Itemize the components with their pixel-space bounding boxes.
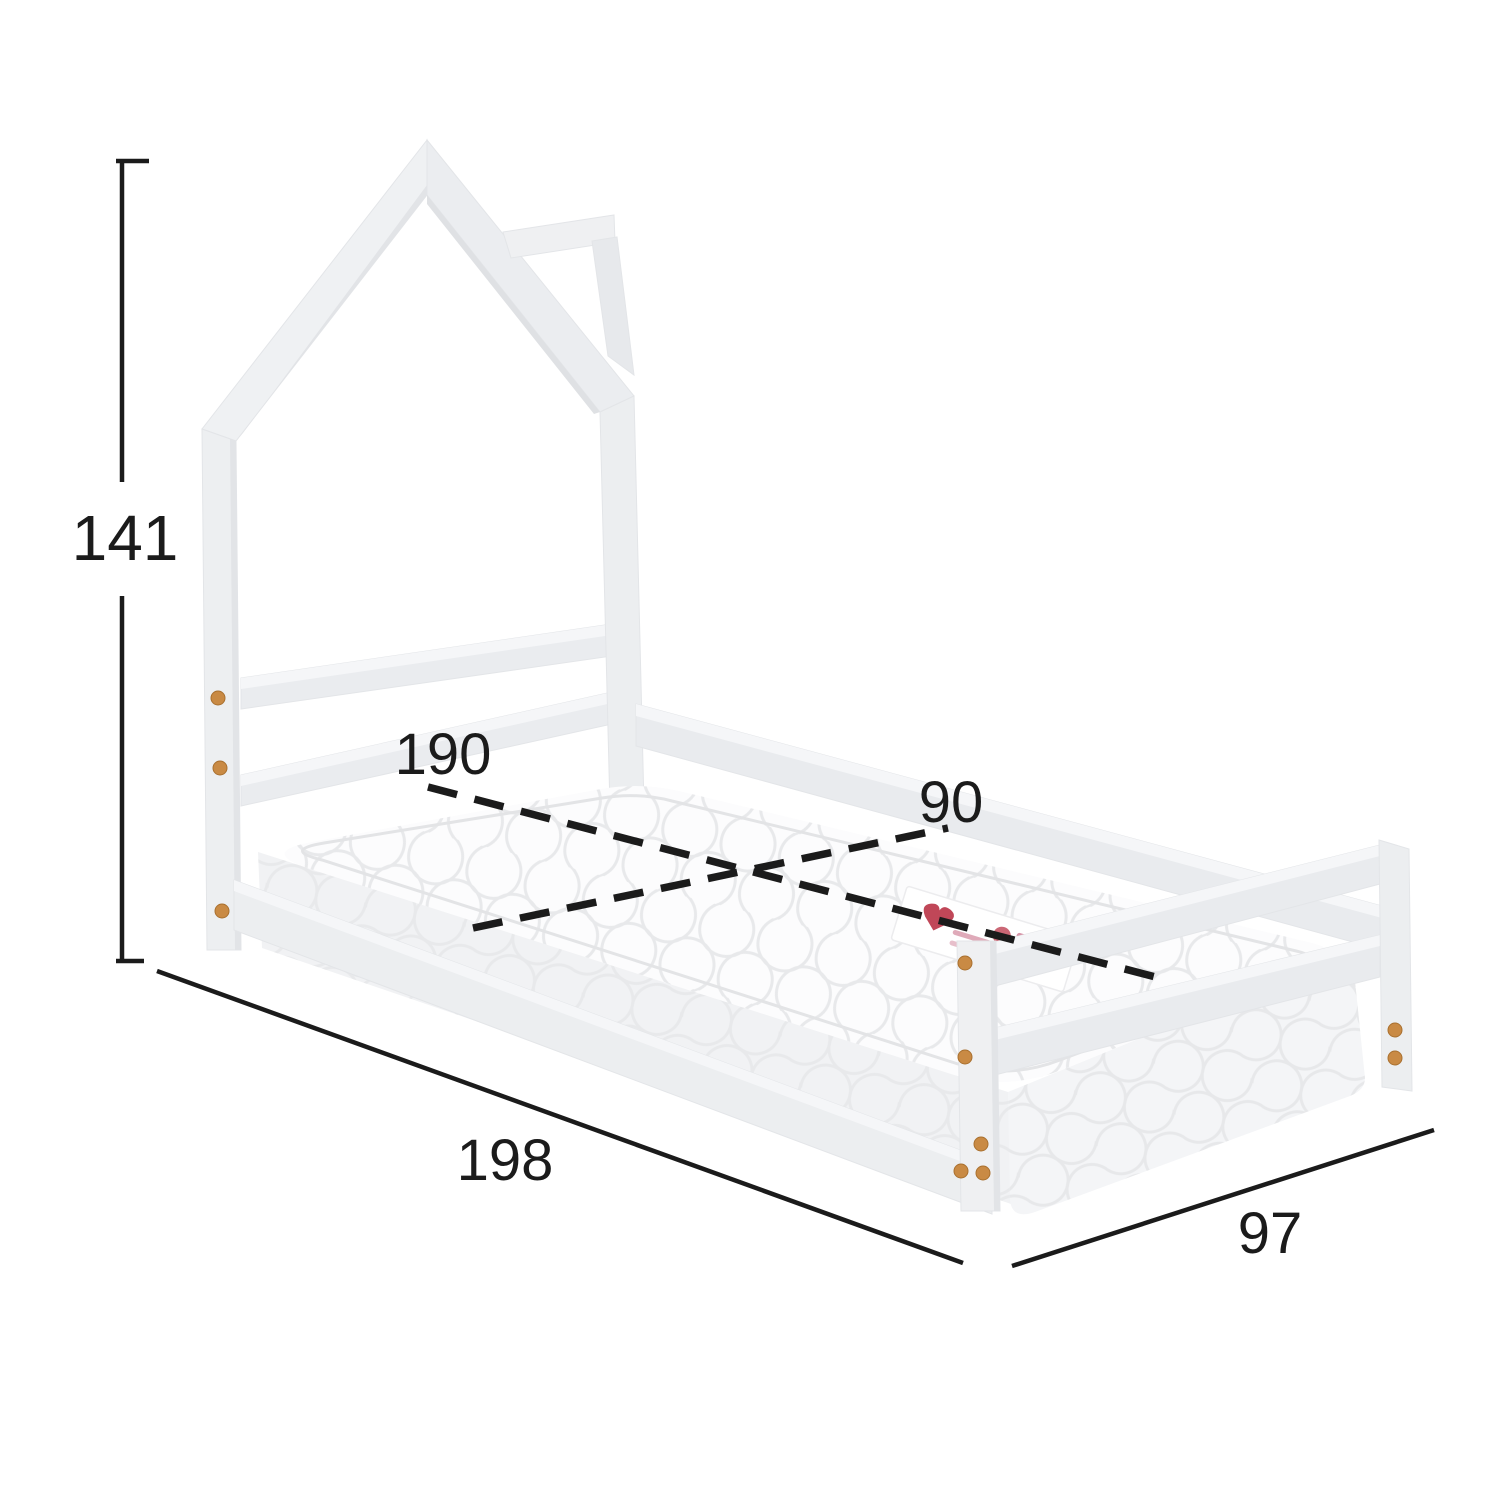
mattress-length-dim-label: 190 (395, 722, 492, 787)
dowel (954, 1164, 968, 1178)
dowel (958, 956, 972, 970)
dowel (213, 761, 227, 775)
roof-left-slope (202, 140, 427, 441)
dowel (958, 1050, 972, 1064)
height-dim-label: 141 (72, 502, 179, 574)
dowel (976, 1166, 990, 1180)
dowel (1388, 1023, 1402, 1037)
bed-dimension-diagram: 141 190 90 198 97 (0, 0, 1499, 1500)
frame-width-dim-label: 97 (1238, 1201, 1303, 1266)
diagram-canvas: 141 190 90 198 97 (0, 0, 1499, 1500)
dowel (974, 1137, 988, 1151)
dowel (215, 904, 229, 918)
dowel (1388, 1051, 1402, 1065)
mattress-width-dim-label: 90 (919, 770, 984, 835)
frame-length-dim-label: 198 (457, 1128, 554, 1193)
dowel (211, 691, 225, 705)
